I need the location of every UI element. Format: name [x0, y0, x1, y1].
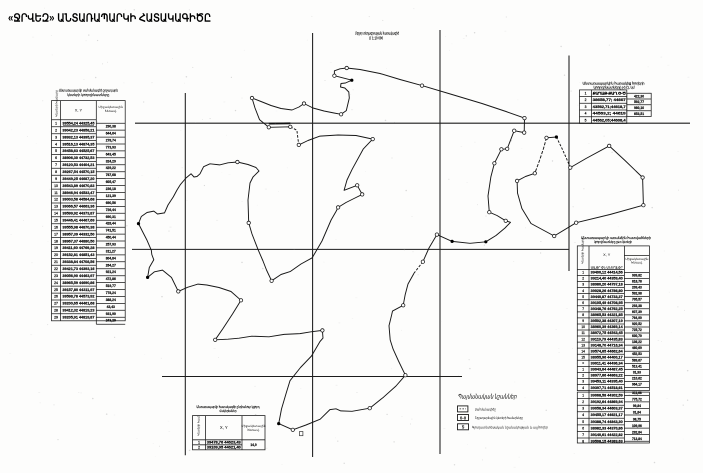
svg-text:39458,63 44525,67: 39458,63 44525,67	[62, 149, 94, 153]
svg-text:290,38: 290,38	[106, 125, 116, 129]
svg-text:29: 29	[54, 316, 58, 320]
svg-text:7: 7	[582, 433, 584, 437]
svg-text:630,70: 630,70	[632, 334, 642, 338]
svg-text:2: 2	[198, 446, 200, 450]
svg-text:24: 24	[54, 281, 58, 285]
svg-text:644,64: 644,64	[106, 132, 116, 136]
svg-text:39555,98 44870,38: 39555,98 44870,38	[62, 225, 94, 229]
svg-text:Ƽ: Ƽ	[462, 425, 465, 430]
svg-text:39152,81 44851,43: 39152,81 44851,43	[62, 253, 94, 257]
svg-text:38977,66 44863,22: 38977,66 44863,22	[591, 374, 623, 378]
svg-text:39574,65 44662,64: 39574,65 44662,64	[591, 349, 623, 353]
svg-text:կոորդինատները ըստ կետերի: կոորդինատները ըստ կետերի	[594, 240, 632, 244]
svg-text:հեռավ.: հեռավ.	[631, 261, 643, 265]
svg-text:=: =	[582, 362, 584, 366]
svg-text:39412,32 44819,23: 39412,32 44819,23	[62, 309, 94, 313]
svg-text:14: 14	[54, 212, 58, 216]
svg-text:39388,74 44843,30: 39388,74 44843,30	[591, 420, 623, 424]
svg-text:39109,95 44621,40: 39109,95 44621,40	[207, 446, 241, 450]
svg-text:հեռավ.: հեռավ.	[247, 428, 259, 432]
svg-text:39508,15 44383,63: 39508,15 44383,63	[591, 439, 623, 443]
svg-text:428,44: 428,44	[106, 222, 116, 226]
svg-text:726,44: 726,44	[106, 208, 116, 212]
svg-text:Պայմանական նշաններ: Պայմանական նշաններ	[458, 394, 518, 401]
svg-text:15: 15	[54, 219, 58, 223]
svg-text:39400,12 44414,56: 39400,12 44414,56	[591, 271, 623, 275]
svg-text:1: 1	[585, 92, 587, 96]
svg-text:8: 8	[582, 313, 584, 317]
svg-text:Սահմանագիծը: Սահմանագիծը	[475, 406, 497, 411]
svg-text:6: 6	[582, 426, 584, 430]
svg-text:931,90: 931,90	[106, 312, 116, 316]
svg-text:4: 4	[582, 289, 584, 293]
svg-text:98,75: 98,75	[633, 417, 641, 421]
svg-text:4: 4	[582, 386, 584, 390]
svg-text:39011,41 44496,34: 39011,41 44496,34	[591, 362, 623, 366]
svg-text:653,51: 653,51	[634, 112, 644, 116]
svg-text:2: 2	[582, 374, 584, 378]
svg-text:1: 1	[582, 394, 584, 398]
svg-text:773,93: 773,93	[106, 146, 116, 150]
svg-text:12: 12	[54, 198, 58, 202]
svg-text:23: 23	[54, 274, 58, 278]
svg-text:21: 21	[54, 260, 58, 264]
svg-text:1: 1	[582, 271, 584, 275]
svg-text:38960,39 44369,14: 38960,39 44369,14	[591, 325, 623, 329]
svg-text:Կետերի համարը: Կետերի համարը	[581, 238, 585, 264]
svg-text:39120,53 44404,21: 39120,53 44404,21	[62, 163, 94, 167]
svg-text:38980,20 44797,18: 38980,20 44797,18	[591, 283, 623, 287]
svg-text:422,30: 422,30	[634, 95, 644, 99]
svg-text:519,77: 519,77	[106, 284, 116, 288]
svg-text:5: 5	[582, 420, 584, 424]
svg-text:713,84: 713,84	[632, 437, 642, 441]
svg-text:775,72: 775,72	[632, 398, 642, 402]
svg-text:2: 2	[582, 400, 584, 404]
svg-text:16: 16	[54, 225, 58, 229]
svg-text:0-0: 0-0	[460, 415, 467, 420]
svg-text:311,27: 311,27	[106, 249, 116, 253]
svg-text:39157,80 44311,97: 39157,80 44311,97	[62, 288, 94, 292]
svg-text:39058,34 44603,37: 39058,34 44603,37	[591, 407, 623, 411]
svg-text:39028,26 44786,80: 39028,26 44786,80	[591, 289, 623, 293]
svg-text:8: 8	[582, 439, 584, 443]
svg-text:136,22: 136,22	[632, 340, 642, 344]
svg-text:605,47: 605,47	[106, 180, 116, 184]
svg-text:18: 18	[54, 239, 58, 243]
svg-text:3: 3	[582, 407, 584, 411]
svg-text:28: 28	[54, 309, 58, 313]
svg-text:236,18: 236,18	[106, 187, 116, 191]
svg-text:14: 14	[581, 349, 585, 353]
svg-text:39478,76 44623,43: 39478,76 44623,43	[207, 441, 241, 445]
svg-text:589,67: 589,67	[632, 358, 642, 362]
svg-text:324,29: 324,29	[106, 159, 116, 163]
svg-text:2: 2	[585, 98, 587, 102]
svg-text:39192,64 44869,94: 39192,64 44869,94	[591, 400, 623, 404]
svg-text:38965,59 44690,86: 38965,59 44690,86	[62, 281, 94, 285]
svg-text:կետերի կոորդինատները: կետերի կոորդինատները	[67, 92, 110, 97]
svg-text:ԱԱ,ՕՐ ՕՆ ԱՆԵՐՋ,ՕՐ: ԱԱ,ՕՐ ՕՆ ԱՆԵՐՋ,ՕՐ	[591, 265, 624, 269]
svg-text:39140,61 44422,82: 39140,61 44422,82	[591, 433, 623, 437]
svg-text:607,39: 607,39	[632, 310, 642, 314]
svg-text:39105,49 44708,95: 39105,49 44708,95	[591, 301, 623, 305]
svg-text:778,24: 778,24	[106, 291, 116, 295]
svg-text:Շրջադարձային կետերի համարները: Շրջադարձային կետերի համարները	[475, 415, 523, 420]
svg-text:ՔԱՂԱՔ-ՔԱՂ Օ-Ծ: ՔԱՂԱՔ-ՔԱՂ Օ-Ծ	[593, 92, 626, 96]
svg-text:388,24: 388,24	[106, 298, 116, 302]
svg-text:741,51: 741,51	[106, 229, 116, 233]
svg-text:939,82: 939,82	[632, 274, 642, 278]
svg-text:39453,11 44395,40: 39453,11 44395,40	[591, 380, 623, 384]
svg-text:17: 17	[54, 232, 58, 236]
svg-text:209,43: 209,43	[632, 286, 642, 290]
svg-text:99,84: 99,84	[633, 404, 641, 408]
svg-text:257,93: 257,93	[106, 243, 116, 247]
svg-text:39214,40 44359,40: 39214,40 44359,40	[591, 277, 623, 281]
svg-text:3: 3	[585, 105, 587, 109]
svg-text:278,74: 278,74	[106, 139, 116, 143]
svg-text:13: 13	[581, 343, 585, 347]
svg-text:38946,94 44533,47: 38946,94 44533,47	[62, 191, 94, 195]
svg-text:121,39: 121,39	[106, 194, 116, 198]
svg-text:39348,76 44762,25: 39348,76 44762,25	[591, 307, 623, 311]
svg-text:964,17: 964,17	[632, 383, 642, 387]
svg-text:39119,79 44435,83: 39119,79 44435,83	[591, 337, 623, 341]
svg-text:26: 26	[54, 295, 58, 299]
svg-text:44562,05;44608,4: 44562,05;44608,4	[593, 118, 626, 122]
svg-text:264,27: 264,27	[106, 263, 116, 267]
svg-text:4: 4	[582, 413, 584, 417]
svg-text:14,9: 14,9	[250, 443, 256, 447]
svg-text:39267,54 44570,15: 39267,54 44570,15	[62, 170, 94, 174]
svg-text:15: 15	[581, 356, 585, 360]
svg-text:3: 3	[582, 283, 584, 287]
svg-text:292,84: 292,84	[632, 430, 642, 434]
svg-text:7: 7	[55, 163, 57, 167]
svg-text:38967,37 44880,50: 38967,37 44880,50	[62, 239, 94, 243]
svg-text:39338,84 44708,56: 39338,84 44708,56	[62, 260, 94, 264]
svg-text:11: 11	[54, 191, 58, 195]
svg-text:Կետերի համ.: Կետերի համ.	[197, 415, 201, 436]
svg-text:5: 5	[582, 295, 584, 299]
svg-text:592,77: 592,77	[634, 100, 644, 104]
svg-text:4: 4	[585, 112, 587, 116]
svg-text:39516,13 44874,35: 39516,13 44874,35	[62, 142, 94, 146]
svg-text:հեռավ.: հեռավ.	[105, 109, 117, 113]
svg-text:27: 27	[54, 302, 58, 306]
svg-text:Գյուղատնտեսական նշանակության և: Գյուղատնտեսական նշանակության և այլ հողեր	[472, 424, 549, 429]
svg-text:39554,24 44325,45: 39554,24 44325,45	[62, 122, 94, 126]
svg-text:3: 3	[582, 380, 584, 384]
svg-text:13: 13	[54, 205, 58, 209]
svg-text:19: 19	[54, 246, 58, 250]
svg-text:429,22: 429,22	[106, 166, 116, 170]
svg-text:39056,90 44463,97: 39056,90 44463,97	[62, 274, 94, 278]
svg-text:39148,70 44716,34: 39148,70 44716,34	[591, 343, 623, 347]
svg-text:38658,77; 44607: 38658,77; 44607	[593, 98, 626, 102]
svg-text:980,10: 980,10	[634, 106, 644, 110]
svg-text:X, Y: X, Y	[220, 425, 228, 430]
svg-text:Անտառապարկի սահմանագծի շրջադար: Անտառապարկի սահմանագծի շրջադարձ	[59, 88, 119, 93]
svg-text:804,84: 804,84	[106, 256, 116, 260]
svg-text:513,41: 513,41	[632, 364, 642, 368]
svg-text:690,31: 690,31	[106, 215, 116, 219]
svg-text:39449,25 44687,20: 39449,25 44687,20	[62, 177, 94, 181]
svg-text:91,84: 91,84	[633, 411, 641, 415]
svg-text:38932,13 44395,37: 38932,13 44395,37	[62, 135, 94, 139]
svg-text:8: 8	[55, 170, 57, 174]
svg-text:1: 1	[198, 441, 200, 445]
svg-text:«ՋՐՎԵԶ» ԱՆՏԱՌԱՊԱՐԿԻ ՀԱՏԱԿԱԳԻԾԸ: «ՋՐՎԵԶ» ԱՆՏԱՌԱՊԱՐԿԻ ՀԱՏԱԿԱԳԻԾԸ	[8, 13, 211, 25]
svg-text:450,44: 450,44	[106, 236, 116, 240]
svg-text:39043,64 44487,45: 39043,64 44487,45	[591, 368, 623, 372]
svg-text:39599,92 44373,87: 39599,92 44373,87	[62, 212, 94, 216]
svg-text:472,86: 472,86	[106, 277, 116, 281]
svg-text:1: 1	[55, 122, 57, 126]
svg-text:X, Y: X, Y	[75, 108, 83, 113]
svg-text:4: 4	[55, 142, 57, 146]
svg-text:764,90: 764,90	[632, 316, 642, 320]
svg-text:կոորդինատները (ՀՀ), կմ: կոորդինատները (ՀՀ), կմ	[594, 86, 636, 90]
svg-text:7: 7	[582, 307, 584, 311]
svg-text:Կետերի համարը: Կետերի համարը	[55, 90, 59, 117]
svg-text:39502,38 44307,19: 39502,38 44307,19	[591, 319, 623, 323]
svg-text:Մ 1:10 000: Մ 1:10 000	[369, 36, 383, 41]
svg-text:44563,2; 44619: 44563,2; 44619	[593, 112, 626, 116]
svg-text:9: 9	[55, 177, 57, 181]
svg-text:920,52: 920,52	[632, 322, 642, 326]
svg-text:9: 9	[582, 319, 584, 323]
svg-text:787,68: 787,68	[106, 173, 116, 177]
svg-text:5: 5	[585, 118, 587, 122]
svg-text:592,98: 592,98	[632, 292, 642, 296]
svg-text:311,68: 311,68	[632, 391, 642, 395]
svg-text:39455,17 44621,17: 39455,17 44621,17	[591, 413, 623, 417]
svg-text:2: 2	[55, 128, 57, 132]
svg-text:39200,65 44461,68: 39200,65 44461,68	[62, 302, 94, 306]
svg-text:3: 3	[55, 135, 57, 139]
svg-text:6: 6	[582, 301, 584, 305]
svg-text:38955,96 44400,17: 38955,96 44400,17	[591, 356, 623, 360]
svg-text:20: 20	[54, 253, 58, 257]
svg-text:39446,41 44467,69: 39446,41 44467,69	[62, 219, 94, 223]
svg-text:109,96: 109,96	[632, 424, 642, 428]
svg-text:643,45: 643,45	[106, 152, 116, 156]
svg-text:818,78: 818,78	[632, 280, 642, 284]
svg-text:210,62: 210,62	[632, 377, 642, 381]
svg-text:39598,78 44573,92: 39598,78 44573,92	[62, 295, 94, 299]
svg-text:10: 10	[581, 325, 585, 329]
svg-text:39066,57 44663,36: 39066,57 44663,36	[62, 205, 94, 209]
svg-text:39397,71 44518,61: 39397,71 44518,61	[591, 386, 623, 390]
svg-text:690,56: 690,56	[106, 201, 116, 205]
svg-text:38965,53 44321,85: 38965,53 44321,85	[591, 313, 623, 317]
svg-text:725,72: 725,72	[632, 328, 642, 332]
svg-text:43,43: 43,43	[107, 305, 115, 309]
svg-text:X, Y: X, Y	[603, 253, 611, 257]
svg-text:38906,30 44732,53: 38906,30 44732,53	[62, 156, 94, 160]
svg-text:38982,33 44370,86: 38982,33 44370,86	[591, 426, 623, 430]
svg-text:38972,75 44543,45: 38972,75 44543,45	[591, 331, 623, 335]
svg-text:39068,58 44302,59: 39068,58 44302,59	[591, 394, 623, 398]
svg-text:39205,91 44819,87: 39205,91 44819,87	[62, 316, 94, 320]
svg-text:25: 25	[54, 288, 58, 292]
svg-text:293,38: 293,38	[632, 304, 642, 308]
svg-text:5: 5	[55, 149, 57, 153]
svg-text:39411,60 44769,28: 39411,60 44769,28	[62, 246, 94, 250]
svg-text:12: 12	[581, 337, 585, 341]
svg-text:10: 10	[54, 184, 58, 188]
svg-text:մակերեսներ: մակերեսներ	[220, 409, 237, 413]
svg-text:43562,71;44618,7: 43562,71;44618,7	[593, 105, 626, 109]
svg-text:39543,89 44670,83: 39543,89 44670,83	[62, 184, 94, 188]
svg-text:91,93: 91,93	[633, 370, 641, 374]
svg-text:2: 2	[582, 277, 584, 281]
svg-text:460,69: 460,69	[632, 346, 642, 350]
svg-text:39042,23 44858,21: 39042,23 44858,21	[62, 128, 94, 132]
svg-text:921,24: 921,24	[106, 270, 116, 274]
svg-text:6: 6	[55, 156, 57, 160]
svg-text:1: 1	[582, 368, 584, 372]
svg-text:243,29: 243,29	[106, 319, 116, 323]
svg-text:39421,73 44393,16: 39421,73 44393,16	[62, 267, 94, 271]
svg-text:38957,39 44332,50: 38957,39 44332,50	[62, 232, 94, 236]
svg-text:22: 22	[54, 267, 58, 271]
svg-text:452,53: 452,53	[632, 352, 642, 356]
svg-text:39440,87 44733,37: 39440,87 44733,37	[591, 295, 623, 299]
